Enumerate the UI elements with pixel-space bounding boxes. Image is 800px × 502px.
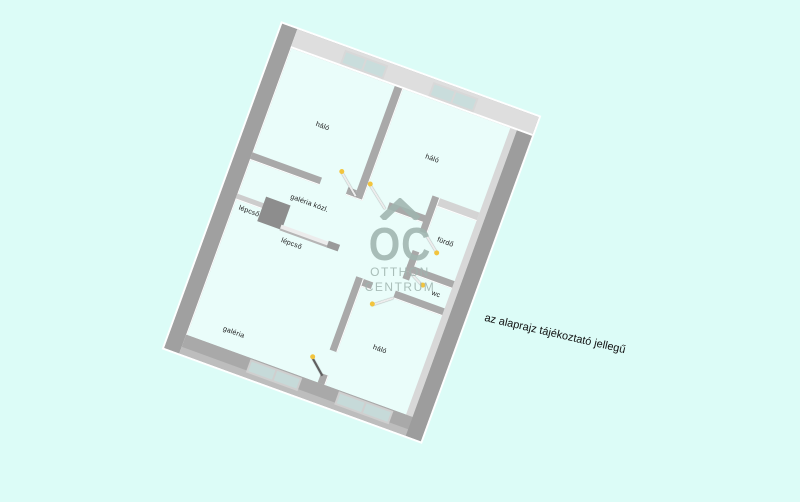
floor-plan: háló háló galéria közl. lépcső lépcső fü… (164, 24, 539, 442)
disclaimer-text: az alaprajz tájékoztató jellegű (483, 312, 626, 356)
